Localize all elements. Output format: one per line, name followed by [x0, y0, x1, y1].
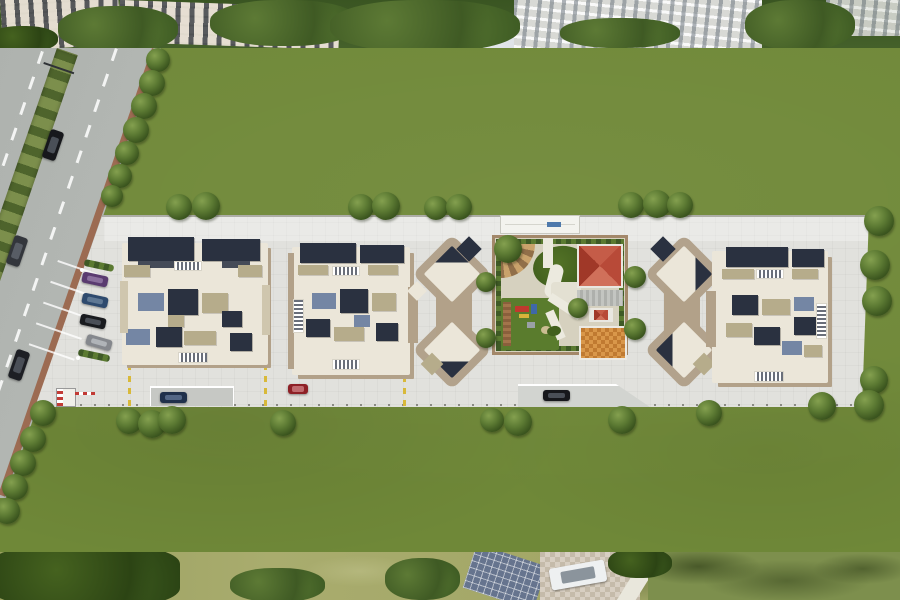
- car-glass: [91, 338, 108, 348]
- car-glass: [548, 393, 564, 399]
- tree: [618, 192, 644, 218]
- tree: [146, 48, 170, 72]
- tree: [192, 192, 220, 220]
- clubhouse-entrance-canopy: [500, 215, 580, 234]
- tree-canopy: [330, 0, 520, 48]
- roof-section: [138, 293, 164, 311]
- roof-section: [754, 327, 780, 345]
- tree: [372, 192, 400, 220]
- stage: Aerial 3D master-plan render of a reside…: [0, 0, 900, 600]
- roof-section: [794, 297, 814, 311]
- tower-block-3: [708, 247, 834, 389]
- clubhouse-red-roof: [579, 246, 621, 286]
- tree: [10, 450, 36, 476]
- entrance-canopy: [756, 269, 784, 279]
- orange-paver-court: [579, 326, 627, 360]
- tree: [2, 474, 28, 500]
- louver-strip: [816, 303, 827, 339]
- roof-section: [794, 317, 818, 335]
- garden-pavilion: [589, 308, 613, 322]
- tree: [131, 93, 157, 119]
- car-glass: [46, 136, 59, 154]
- roof-section: [804, 345, 822, 357]
- roof-section: [376, 323, 398, 341]
- entrance-canopy: [332, 266, 360, 276]
- tree: [696, 400, 722, 426]
- surroundings-top: [0, 0, 900, 48]
- car-glass: [85, 317, 101, 326]
- tree: [270, 410, 296, 436]
- car-glass: [10, 242, 23, 260]
- roof-section: [312, 293, 336, 309]
- entrance-canopy: [754, 371, 784, 382]
- tree: [115, 141, 139, 165]
- tree: [624, 318, 646, 340]
- tree: [862, 286, 892, 316]
- neighbor-lawn: [648, 552, 900, 600]
- bollard-light: [76, 356, 80, 360]
- tree: [624, 266, 646, 288]
- park-path: [543, 238, 553, 268]
- car: [543, 390, 570, 401]
- tree-canopy: [0, 552, 180, 600]
- canopy-skylight: [547, 222, 561, 227]
- tree-canopy: [230, 568, 325, 600]
- car-glass: [560, 566, 595, 583]
- surroundings-bottom: [0, 552, 900, 600]
- roof-section: [360, 245, 404, 263]
- tree: [476, 272, 496, 292]
- tree: [424, 196, 448, 220]
- tree-canopy: [58, 6, 178, 48]
- roof-section: [168, 289, 198, 315]
- roof-section: [306, 319, 330, 337]
- tower-block-1: [122, 237, 275, 370]
- roof-section: [726, 323, 752, 337]
- tree: [667, 192, 693, 218]
- play-equipment: [515, 306, 529, 312]
- roof-section: [354, 315, 370, 327]
- roof-section: [372, 293, 396, 311]
- roof-section: [124, 265, 150, 277]
- tree: [166, 194, 192, 220]
- ramp-marking-yellow: [264, 366, 267, 406]
- balcony-strip: [262, 285, 270, 335]
- tree: [476, 328, 496, 348]
- tree: [348, 194, 374, 220]
- tree: [864, 206, 894, 236]
- roof-section: [726, 247, 788, 267]
- roof-section: [340, 289, 368, 313]
- roof-section: [334, 327, 364, 341]
- pavilion-red-roof: [594, 310, 608, 320]
- tree: [158, 406, 186, 434]
- play-equipment: [527, 322, 535, 328]
- louver-strip: [293, 299, 304, 333]
- play-equipment: [519, 314, 529, 318]
- roof-section: [202, 239, 260, 261]
- tree-canopy: [560, 18, 680, 48]
- tree: [446, 194, 472, 220]
- tree: [30, 400, 56, 426]
- entrance-canopy: [332, 359, 360, 370]
- car-glass: [87, 275, 103, 284]
- tree: [101, 185, 123, 207]
- car-glass: [12, 356, 25, 374]
- car-glass: [165, 395, 181, 401]
- car-glass: [292, 386, 304, 391]
- roof-section: [368, 265, 398, 275]
- tree: [494, 235, 522, 263]
- roof-section: [732, 295, 758, 315]
- roof-section: [762, 299, 790, 315]
- entry-boom-barrier: [75, 392, 95, 395]
- roof-section: [782, 341, 802, 355]
- roof-section: [230, 333, 252, 351]
- tree-canopy: [608, 552, 672, 578]
- tree: [608, 406, 636, 434]
- tree-canopy: [0, 26, 58, 48]
- entrance-canopy: [178, 352, 208, 363]
- tree: [504, 408, 532, 436]
- tree: [123, 117, 149, 143]
- roof-section: [184, 331, 216, 345]
- roof-section: [156, 327, 182, 347]
- roof-section: [168, 315, 184, 327]
- roof-section: [298, 265, 328, 275]
- roof-section: [722, 269, 754, 279]
- car: [160, 392, 187, 403]
- tree: [568, 298, 588, 318]
- tree: [808, 392, 836, 420]
- car: [288, 384, 308, 394]
- car-glass: [87, 296, 103, 305]
- tree: [854, 390, 884, 420]
- roof-section: [222, 311, 242, 327]
- tree-canopy: [745, 0, 855, 48]
- entrance-canopy: [174, 261, 202, 271]
- roof-section: [238, 265, 262, 277]
- play-equipment: [531, 304, 537, 314]
- clubhouse: [577, 244, 623, 288]
- playground-deck: [503, 302, 511, 346]
- podium-connector: [706, 291, 716, 347]
- tower-block-2: [292, 243, 418, 383]
- roof-section: [792, 249, 824, 267]
- roof-section: [126, 329, 150, 345]
- roof-section: [300, 243, 356, 263]
- tree: [20, 426, 46, 452]
- tree: [480, 408, 504, 432]
- tree-canopy: [385, 558, 460, 600]
- roof-section: [128, 237, 194, 261]
- tower-wing-2: [404, 236, 500, 392]
- canopy-line: [505, 224, 575, 225]
- guard-booth: [56, 388, 76, 407]
- roof-section: [202, 293, 228, 313]
- tree: [860, 250, 890, 280]
- roof-section: [792, 269, 818, 279]
- balcony-strip: [120, 281, 128, 333]
